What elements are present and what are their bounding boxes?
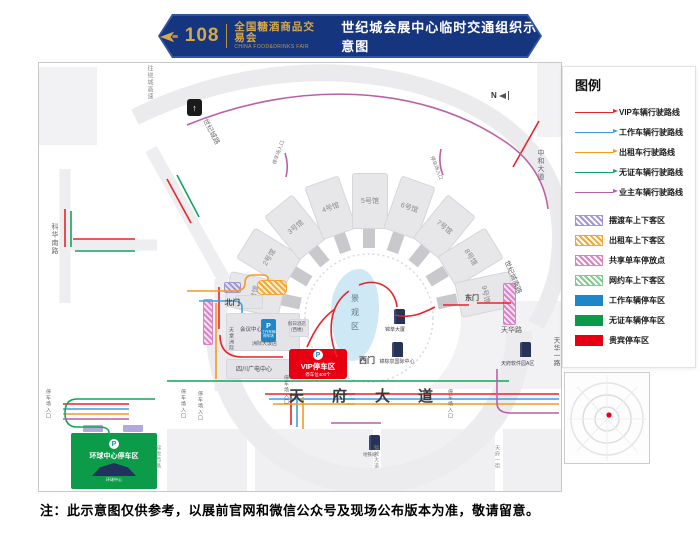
disclaimer-note: 注：此示意图仅供参考，以展前官网和微信公众号及现场公布版本为准，敬请留意。 — [40, 500, 540, 519]
gate-north-label: 北门 — [225, 297, 240, 308]
shuttle-zone — [224, 282, 241, 293]
work-vehicle-parking-sign: P 工作车辆 停车场 — [261, 319, 276, 342]
fair-name-cn: 全国糖酒商品交易会 — [234, 22, 326, 45]
road-jinyue-west: 锦悦西路 — [155, 445, 162, 469]
legend-route-taxi: 出租车行驶路线 — [575, 142, 695, 162]
header-banner: 108 全国糖酒商品交易会 CHINA FOOD&DRINKS FAIR 世纪城… — [158, 14, 542, 58]
legend-zone-shuttle: 摆渡车上下客区 — [575, 210, 695, 230]
work-parking-swatch — [575, 295, 603, 306]
conference-center-label: 会议中心 — [240, 325, 262, 333]
global-center-parking-zone: P 环球中心停车区 环球中心 — [71, 433, 157, 489]
parking-entrance-label: 停车场入口 — [197, 391, 204, 421]
compass-north-indicator: N — [491, 91, 509, 100]
holiday-inn-sub-label: (西楼) — [291, 327, 303, 333]
legend-zone-bike: 共享单车停放点 — [575, 250, 695, 270]
paradise-hotel-label: 天堂洲际 — [228, 327, 235, 351]
vip-route-arrow-icon — [575, 112, 613, 113]
north-arrow-icon — [499, 93, 506, 99]
traffic-map: 1号馆 2号馆 3号馆 4号馆 5号馆 6号馆 7号馆 8号馆 9号馆 景观区 — [38, 62, 562, 492]
legend-route-owner: 业主车辆行驶路线 — [575, 182, 695, 202]
parking-entrance-label: 停车场入口 — [447, 389, 454, 419]
legend-zone-work-parking: 工作车辆停车区 — [575, 290, 695, 310]
parking-icon: P — [313, 350, 323, 360]
legend-panel: 图例 VIP车辆行驶路线 工作车辆行驶路线 出租车行驶路线 无证车辆行驶路线 业… — [562, 66, 696, 368]
intercontinental-label: 洲际大饭店 — [252, 340, 277, 347]
unlicensed-parking-swatch — [575, 315, 603, 326]
shuttle-platform — [83, 425, 103, 432]
rideshare-zone-swatch — [575, 275, 603, 286]
owner-route-arrow-icon — [575, 192, 613, 193]
software-park-tower-icon — [520, 342, 531, 357]
legend-title: 图例 — [575, 75, 695, 94]
software-park-label: 天府软件园A区 — [501, 360, 534, 367]
page-title: 世纪城会展中心临时交通组织示意图 — [341, 17, 540, 55]
taxi-zone-swatch — [575, 235, 603, 246]
jinzongquan-label: 锦棕泉国际中心 — [377, 359, 417, 365]
legend-zone-vip-parking: 贵宾停车区 — [575, 330, 695, 350]
parking-direction-sign: ↑ — [187, 99, 202, 116]
parking-icon: P — [266, 323, 271, 330]
jincui-tower-label: 锦萃大厦 — [385, 326, 405, 333]
traffic-map-page: 108 全国糖酒商品交易会 CHINA FOOD&DRINKS FAIR 世纪城… — [0, 0, 700, 539]
road-tianhua: 天华路 — [501, 325, 522, 335]
work-route-arrow-icon — [575, 132, 613, 133]
legend-route-vip: VIP车辆行驶路线 — [575, 102, 695, 122]
unlicensed-route-arrow-icon — [575, 172, 613, 173]
road-tianfu-1st-street: 天府一街 — [494, 445, 501, 469]
hall-5: 5号馆 — [352, 173, 388, 229]
bike-zone-swatch — [575, 255, 603, 266]
road-kehua-south: 科华南路 — [49, 223, 59, 255]
divider — [226, 24, 227, 48]
shuttle-zone-swatch — [575, 215, 603, 226]
jincui-tower-icon — [394, 309, 405, 324]
city-overview-inset-map — [564, 372, 650, 464]
vip-parking-zone: P VIP停车区 停车位400个 — [289, 349, 347, 379]
parking-icon: P — [109, 439, 119, 449]
legend-route-work: 工作车辆行驶路线 — [575, 122, 695, 142]
road-tianhua-1st: 天华一路 — [550, 337, 560, 367]
legend-route-unlicensed: 无证车辆行驶路线 — [575, 162, 695, 182]
gate-west-label: 西门 — [359, 355, 375, 366]
venue-location-dot — [606, 412, 611, 417]
gate-east-label: 东门 — [465, 293, 479, 303]
legend-zone-rideshare: 网约车上下客区 — [575, 270, 695, 290]
metro-station-label: 地铁站 — [363, 452, 377, 458]
bike-zone-west — [203, 299, 213, 345]
guangdian-center-label: 四川广电中心 — [236, 364, 272, 373]
taxi-zone — [257, 280, 287, 295]
vip-parking-swatch — [575, 335, 603, 346]
taxi-route-arrow-icon — [575, 152, 613, 153]
parking-entrance-label: 停车场入口 — [283, 375, 290, 405]
legend-zone-unlicensed-parking: 无证车辆停车区 — [575, 310, 695, 330]
shuttle-platform — [123, 425, 143, 432]
road-zhonghe-avenue: 中和大道 — [535, 149, 545, 181]
global-center-building-icon — [92, 463, 136, 476]
legend-zone-taxi: 出租车上下客区 — [575, 230, 695, 250]
parking-entrance-label: 停车场入口 — [45, 389, 52, 419]
fair-logo-icon — [160, 30, 178, 42]
road-ring-expressway: 往绕城高速 — [145, 65, 154, 100]
fair-name-en: CHINA FOOD&DRINKS FAIR — [234, 45, 326, 51]
parking-entrance-label: 停车场入口 — [180, 389, 187, 419]
fair-number: 108 — [185, 25, 220, 47]
jinzongquan-tower-icon — [392, 342, 403, 357]
road-tianfu-avenue: 天府大道 — [289, 385, 461, 406]
